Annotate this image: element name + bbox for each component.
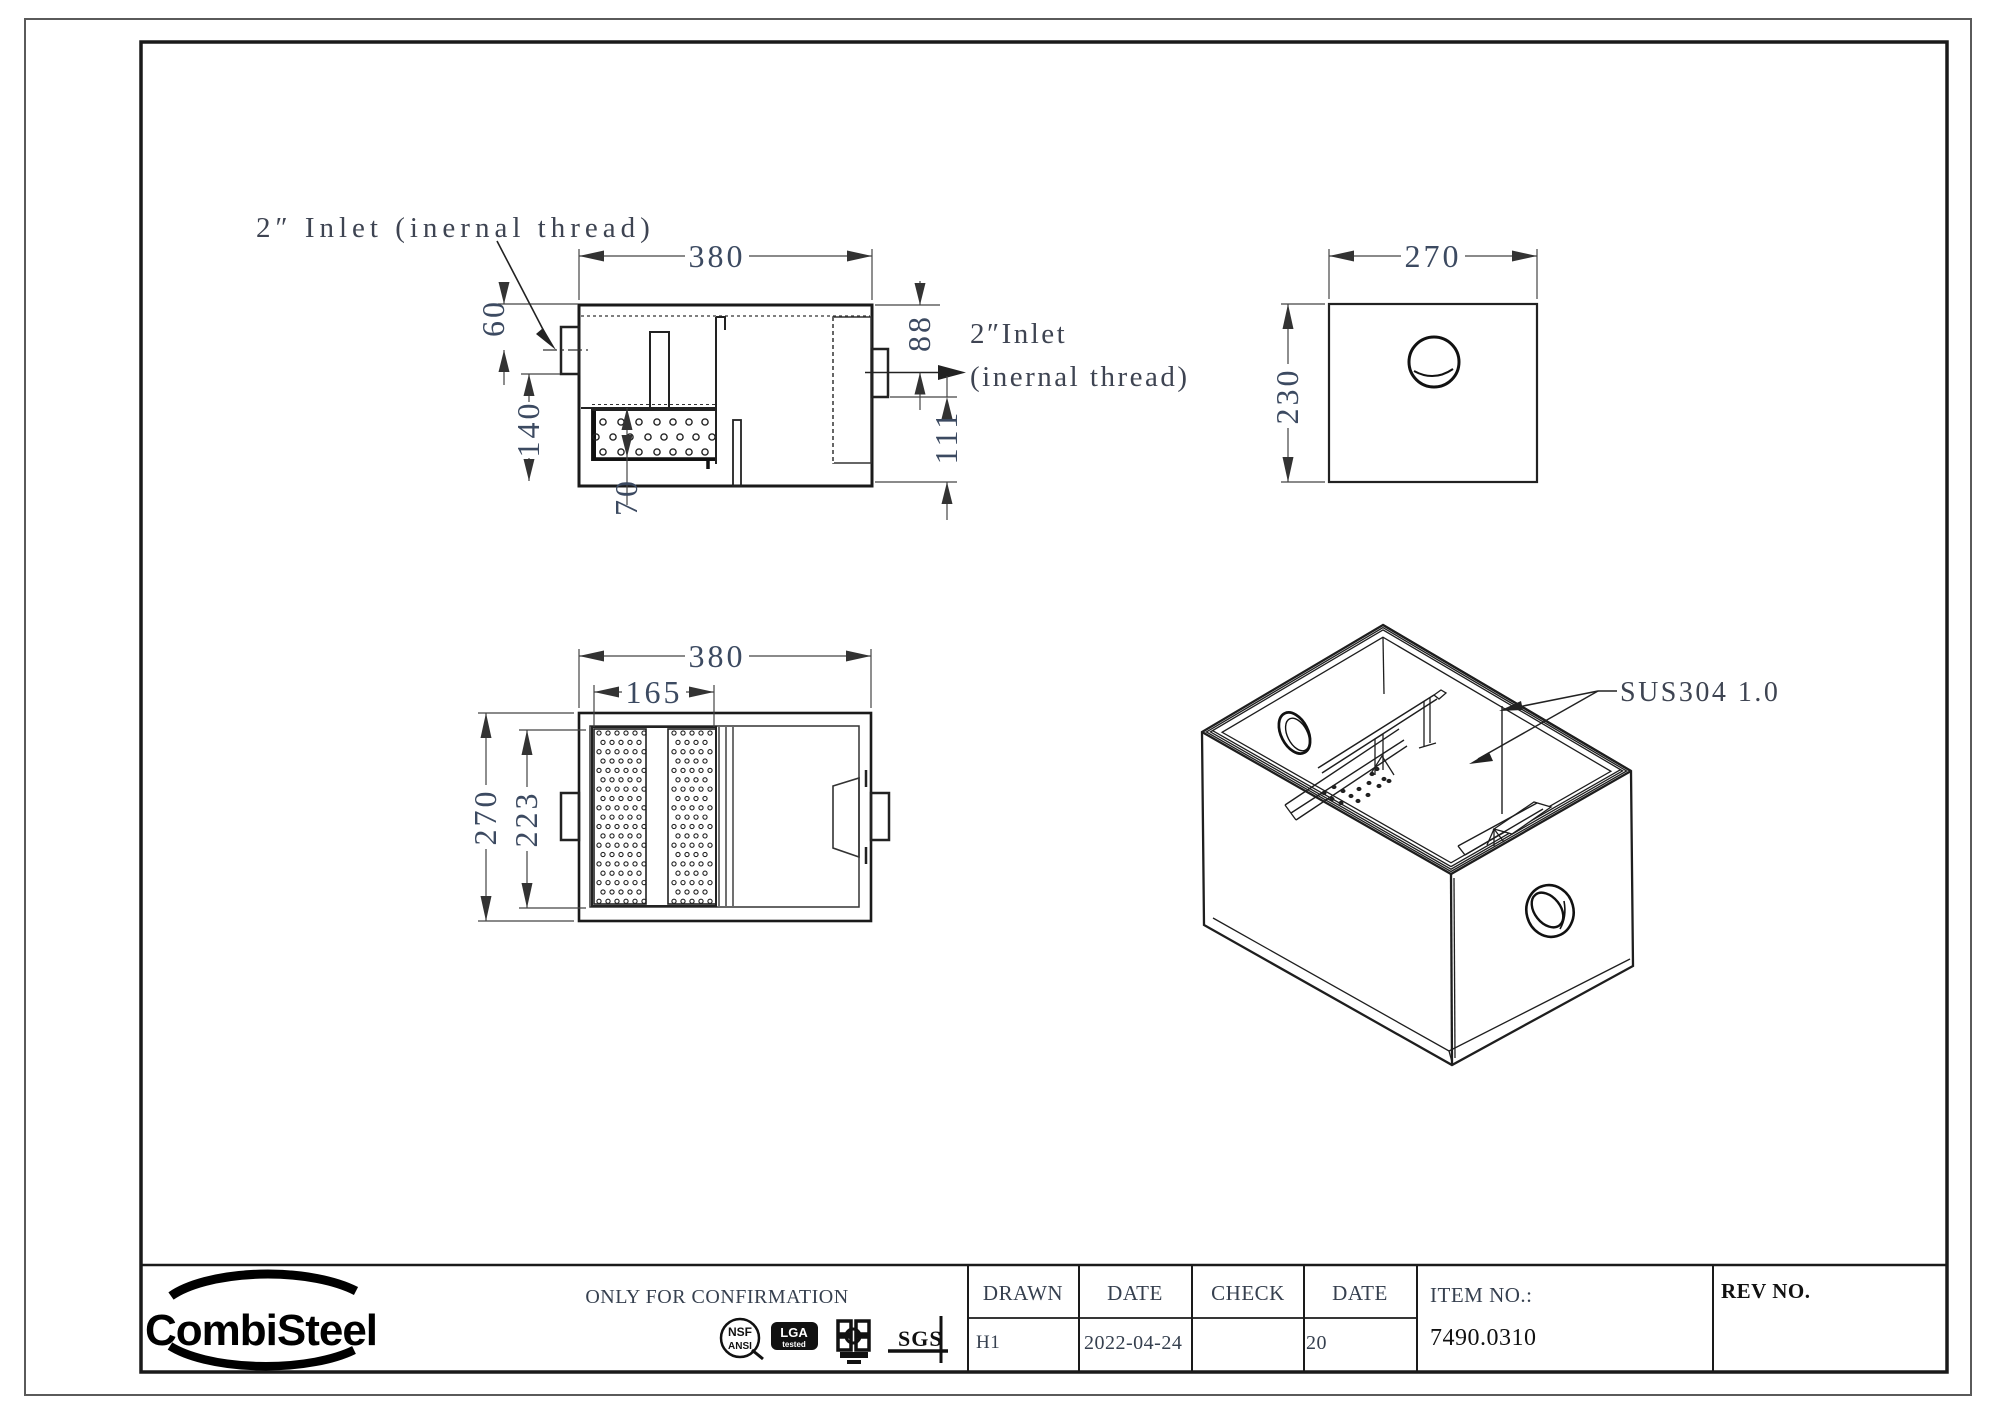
svg-text:2022-04-24: 2022-04-24 [1084,1332,1182,1354]
svg-text:SUS304 1.0: SUS304 1.0 [1620,677,1780,708]
svg-text:tested: tested [782,1340,806,1349]
svg-text:230: 230 [1269,368,1305,425]
svg-text:ONLY FOR CONFIRMATION: ONLY FOR CONFIRMATION [585,1286,848,1308]
svg-text:88: 88 [901,314,937,352]
svg-text:CombiSteel: CombiSteel [145,1306,377,1355]
svg-text:380: 380 [689,238,746,274]
svg-text:111: 111 [928,410,964,465]
svg-text:165: 165 [626,674,683,710]
svg-text:ANSI: ANSI [728,1341,752,1352]
svg-text:2″ Inlet (inernal thread): 2″ Inlet (inernal thread) [256,212,655,244]
svg-text:(inernal thread): (inernal thread) [970,361,1190,393]
svg-text:223: 223 [508,791,544,848]
svg-text:NSF: NSF [728,1325,752,1339]
svg-text:2″Inlet: 2″Inlet [970,318,1067,350]
svg-text:270: 270 [467,789,503,846]
svg-text:DRAWN: DRAWN [983,1281,1063,1305]
svg-text:140: 140 [510,401,546,458]
svg-text:20: 20 [1306,1332,1327,1354]
svg-text:LGA: LGA [780,1325,808,1340]
svg-text:CHECK: CHECK [1211,1281,1285,1305]
svg-text:REV NO.: REV NO. [1721,1279,1810,1303]
svg-text:DATE: DATE [1107,1281,1163,1305]
svg-text:DATE: DATE [1332,1281,1388,1305]
svg-text:SGS: SGS [898,1326,943,1351]
svg-text:380: 380 [689,638,746,674]
svg-text:270: 270 [1405,238,1462,274]
svg-text:70: 70 [608,478,644,516]
svg-text:ITEM NO.:: ITEM NO.: [1430,1283,1533,1307]
svg-text:7490.0310: 7490.0310 [1430,1325,1537,1351]
svg-text:H1: H1 [976,1332,1000,1353]
svg-text:60: 60 [475,299,511,337]
